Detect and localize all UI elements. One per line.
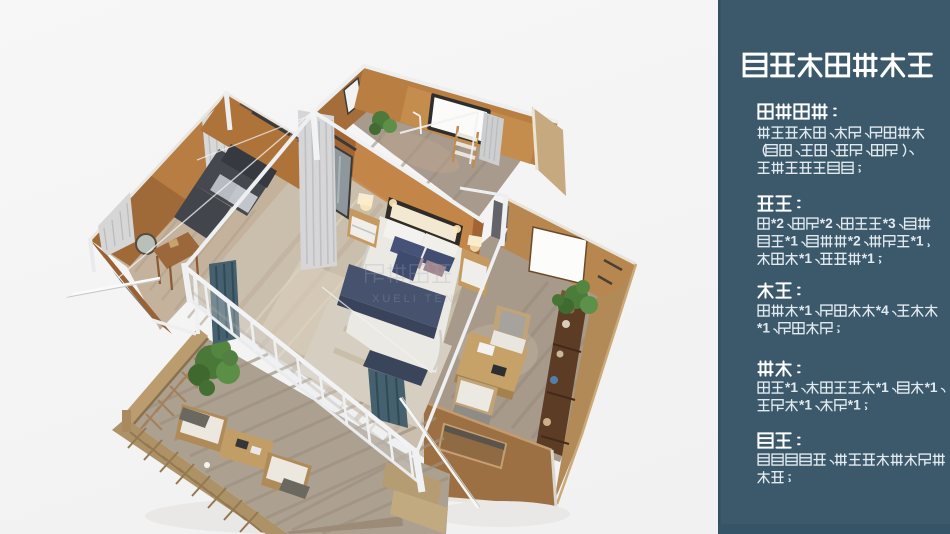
svg-text:*2: *2 xyxy=(771,216,784,231)
svg-text:*1: *1 xyxy=(848,397,861,412)
svg-text:*1: *1 xyxy=(799,397,812,412)
svg-text:*1: *1 xyxy=(876,380,889,395)
svg-text:*2: *2 xyxy=(820,216,833,231)
svg-text:*1: *1 xyxy=(785,380,798,395)
svg-text:*3: *3 xyxy=(883,216,896,231)
svg-text:*1: *1 xyxy=(911,233,924,248)
svg-text:XUELI TENT: XUELI TENT xyxy=(372,293,465,305)
svg-text:*1: *1 xyxy=(862,251,875,266)
svg-text:*1: *1 xyxy=(799,251,812,266)
svg-text:*1: *1 xyxy=(757,320,770,335)
svg-text:*4: *4 xyxy=(876,303,889,318)
svg-text:*1: *1 xyxy=(799,303,812,318)
svg-text:*1: *1 xyxy=(785,233,798,248)
svg-text:*2: *2 xyxy=(848,233,861,248)
svg-text:*1: *1 xyxy=(925,380,938,395)
